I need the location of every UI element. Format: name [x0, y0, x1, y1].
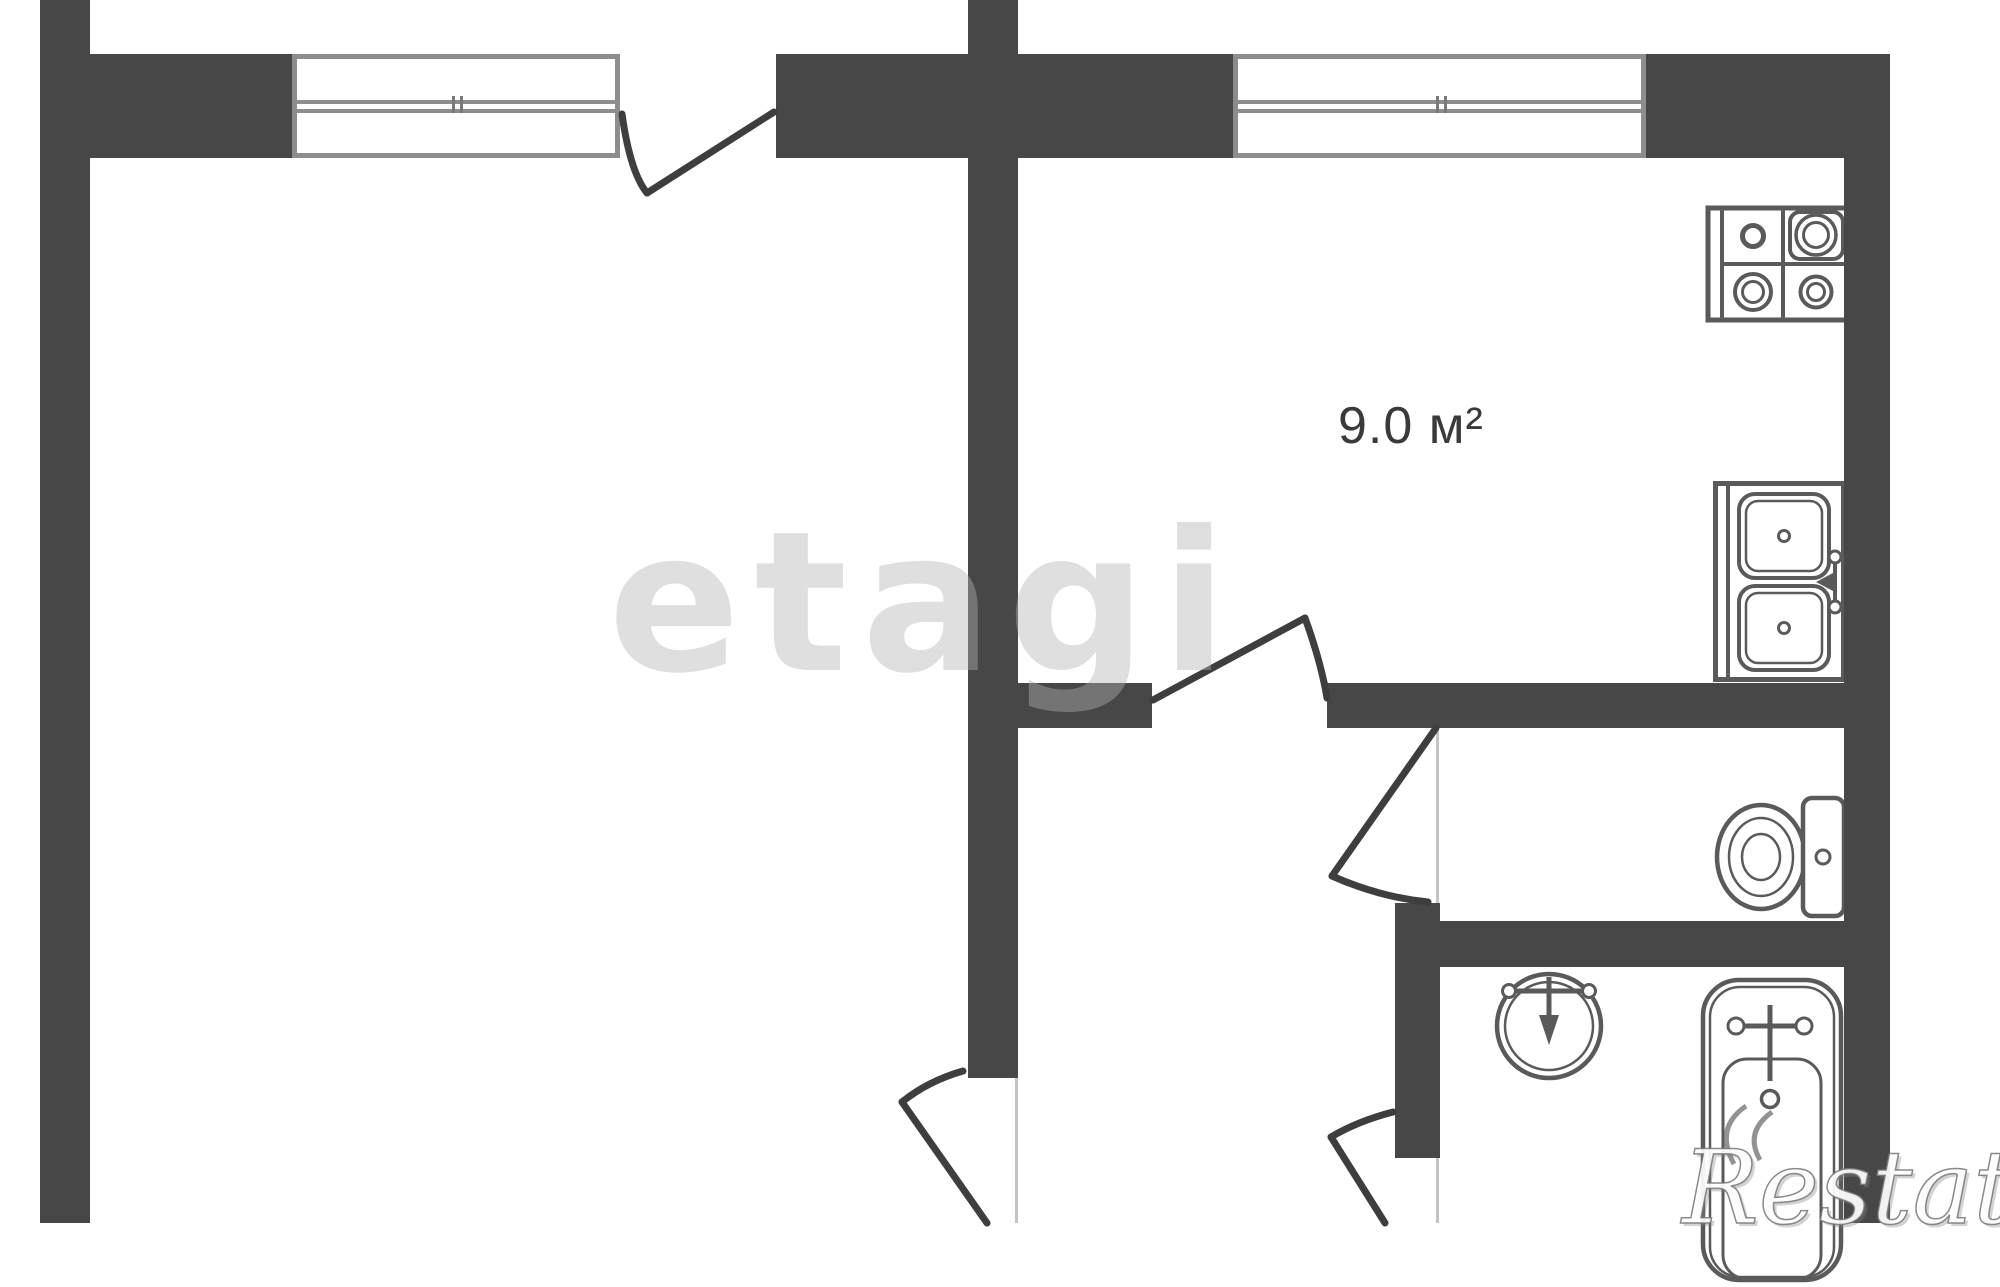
floor-plan-page: { "plan": { "type": "apartment-floor-pla… [0, 0, 2000, 1223]
watermark-flourish [1712, 1098, 1792, 1178]
door-swing-icon-toilet [1332, 728, 1436, 902]
kitchen-area-label: 9.0 м² [1338, 396, 1484, 456]
door-swings-layer [0, 0, 2000, 1223]
door-swing-icon-bathroom [1331, 1112, 1393, 1223]
door-swing-icon-hallway [902, 1071, 987, 1223]
door-swing-icon-kitchen [1153, 618, 1327, 700]
door-swing-icon-balcony [622, 112, 774, 193]
